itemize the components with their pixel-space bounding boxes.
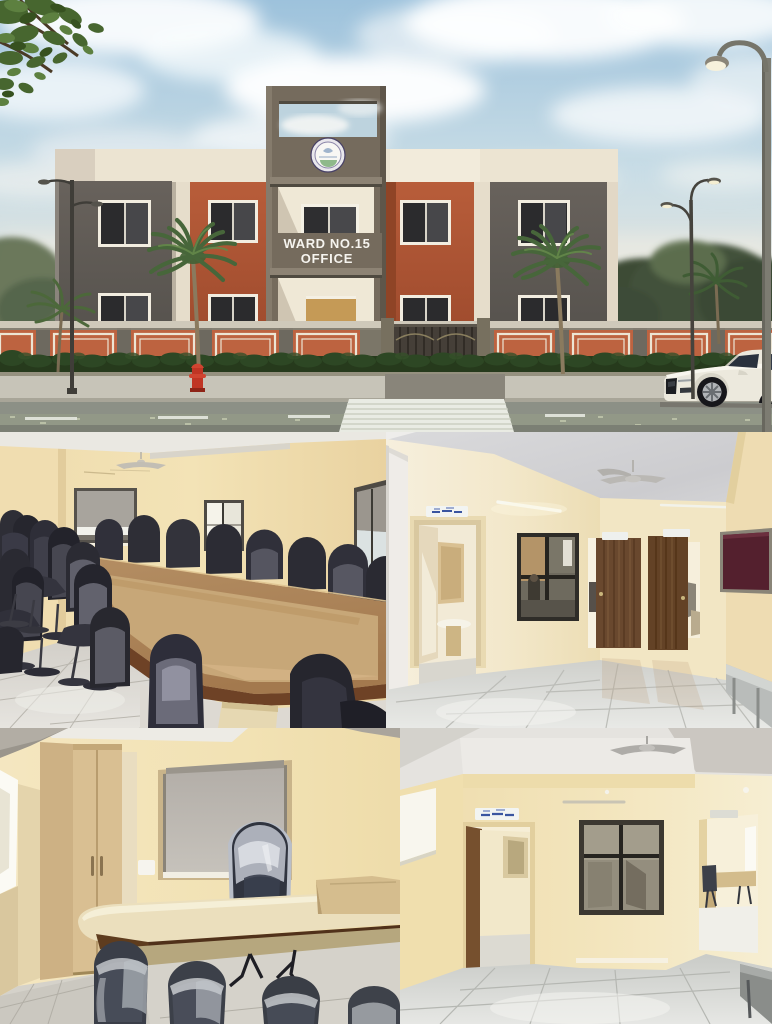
svg-text:WARD NO.15: WARD NO.15 bbox=[284, 236, 371, 251]
svg-text:OFFICE: OFFICE bbox=[301, 251, 353, 266]
